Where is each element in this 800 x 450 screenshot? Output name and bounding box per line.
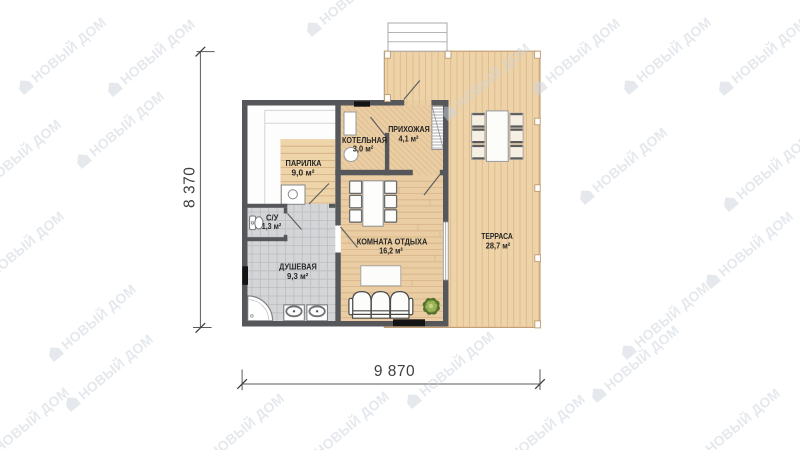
svg-text:8 370: 8 370 bbox=[182, 167, 199, 208]
svg-text:28,7 м²: 28,7 м² bbox=[486, 241, 510, 251]
svg-text:ДУШЕВАЯ: ДУШЕВАЯ bbox=[279, 262, 317, 272]
svg-text:ПРИХОЖАЯ: ПРИХОЖАЯ bbox=[388, 124, 430, 134]
svg-text:4,1 м²: 4,1 м² bbox=[399, 134, 419, 144]
svg-text:16,2 м²: 16,2 м² bbox=[379, 246, 402, 256]
svg-text:ПАРИЛКА: ПАРИЛКА bbox=[286, 158, 323, 168]
svg-text:1,3 м²: 1,3 м² bbox=[262, 222, 282, 231]
svg-text:3,0 м²: 3,0 м² bbox=[353, 144, 374, 154]
svg-text:ТЕРРАСА: ТЕРРАСА bbox=[481, 231, 513, 241]
svg-text:9,0 м²: 9,0 м² bbox=[292, 168, 315, 178]
svg-text:9,3 м²: 9,3 м² bbox=[287, 271, 308, 281]
svg-text:С/У: С/У bbox=[266, 213, 279, 222]
svg-text:9 870: 9 870 bbox=[374, 363, 415, 380]
